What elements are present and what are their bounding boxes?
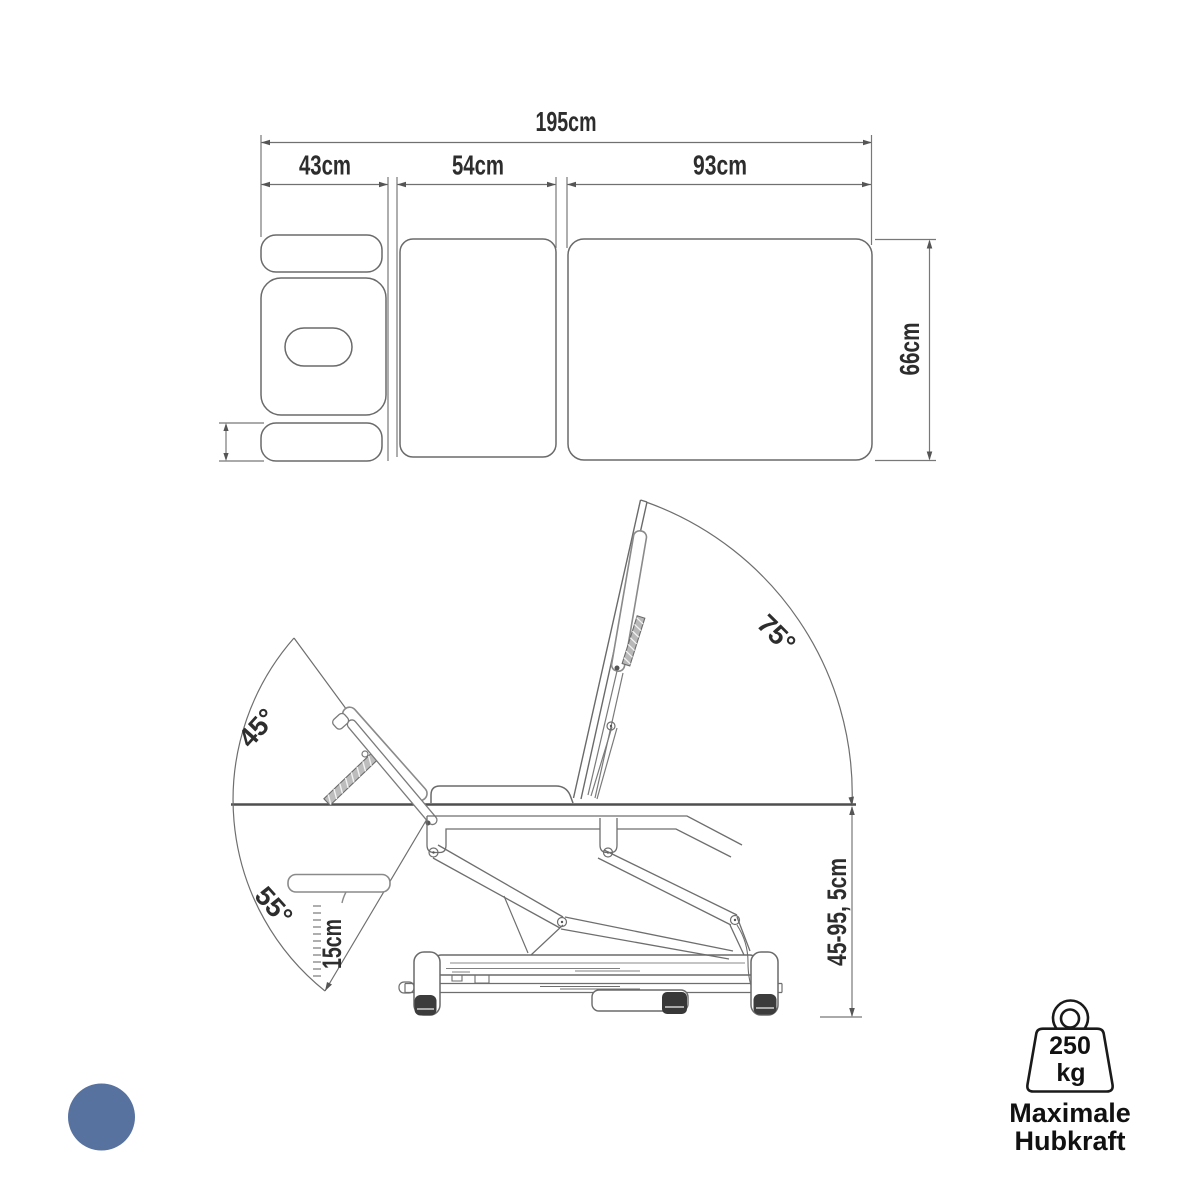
svg-text:Hubkraft: Hubkraft	[1014, 1126, 1125, 1156]
svg-text:93cm: 93cm	[693, 150, 747, 181]
svg-text:Maximale: Maximale	[1009, 1098, 1131, 1128]
svg-text:kg: kg	[1056, 1059, 1085, 1087]
svg-text:45°: 45°	[232, 703, 282, 754]
svg-text:66cm: 66cm	[894, 323, 925, 376]
svg-text:43cm: 43cm	[299, 150, 351, 181]
svg-text:45-95, 5cm: 45-95, 5cm	[822, 858, 852, 966]
svg-text:195cm: 195cm	[536, 106, 597, 137]
svg-text:15cm: 15cm	[317, 919, 347, 969]
svg-text:54cm: 54cm	[452, 150, 504, 181]
svg-text:75°: 75°	[751, 609, 801, 659]
svg-text:250: 250	[1049, 1032, 1091, 1060]
